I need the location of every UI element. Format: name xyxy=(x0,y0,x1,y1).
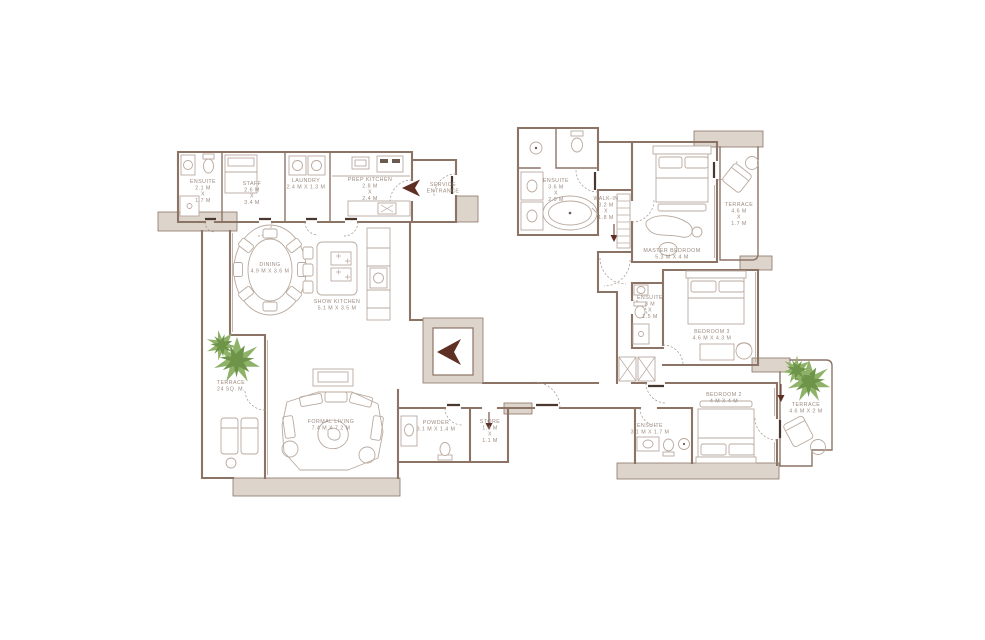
terrace-armchair xyxy=(783,415,814,447)
dryer xyxy=(308,156,325,175)
vanity-unit xyxy=(521,172,543,200)
label-bedroom2-ensuite-name: ENSUITE xyxy=(637,423,663,429)
label-bedroom3-name: BEDROOM 3 xyxy=(694,329,730,335)
sofa-cushion xyxy=(325,392,347,402)
b2-shower-dot xyxy=(683,443,685,445)
terrace-top-right-group xyxy=(722,157,759,194)
walls-corridor xyxy=(483,252,692,408)
slab-bottom-left xyxy=(233,478,400,496)
slab-top-right xyxy=(694,131,763,147)
toilet xyxy=(572,138,583,152)
bathtub-drain xyxy=(569,212,572,215)
svg-text:2.0 M: 2.0 M xyxy=(548,197,564,203)
slab-bottom-right xyxy=(617,463,779,479)
sofa-cushion xyxy=(299,393,322,407)
desk xyxy=(700,344,734,360)
svg-text:2.4 M: 2.4 M xyxy=(362,196,378,202)
cooktop-burner xyxy=(380,159,388,163)
kitchen-tall-cabinets xyxy=(367,228,390,320)
label-laundry-name: LAUNDRY xyxy=(292,178,320,184)
toilet-tank xyxy=(203,154,214,159)
slab-vestibule xyxy=(456,196,478,222)
elevator xyxy=(423,318,483,383)
powder-toilet xyxy=(440,443,450,456)
master-headboard xyxy=(653,146,711,154)
washer xyxy=(289,156,306,175)
master-bedroom-group xyxy=(646,146,711,256)
svg-text:5.1 M X 3.5 M: 5.1 M X 3.5 M xyxy=(318,305,357,311)
bedroom3-headboard xyxy=(686,271,746,278)
label-terrace-right-name: TERRACE xyxy=(792,402,820,408)
label-terrace-left-name: TERRACE xyxy=(217,380,245,386)
shower-head-dot xyxy=(535,147,537,149)
chaise-sofa xyxy=(646,216,692,238)
terrace-side-table xyxy=(746,157,759,170)
label-prep-kitchen-name: PREP KITCHEN xyxy=(348,177,392,183)
island-stool xyxy=(303,264,313,276)
label-bedroom2-name: BEDROOM 2 xyxy=(706,392,742,398)
floor-plan-page: ENSUITE 2.1 M X 1.7 M STAFF 2.6 M X 3.4 … xyxy=(0,0,985,640)
svg-text:1.5 M: 1.5 M xyxy=(642,314,658,320)
svg-text:X: X xyxy=(648,308,652,314)
svg-text:X: X xyxy=(737,215,741,221)
svg-text:2.1 M: 2.1 M xyxy=(195,185,211,191)
svg-text:3.1 M X 1.7 M: 3.1 M X 1.7 M xyxy=(631,429,670,435)
label-walk-in-name: WALK-IN xyxy=(593,196,618,202)
label-staff-ensuite-name: ENSUITE xyxy=(190,179,216,185)
label-master-bedroom-name: MASTER BEDROOM xyxy=(643,248,700,254)
svg-text:X: X xyxy=(488,432,492,438)
island-stool xyxy=(303,281,313,293)
desk-chair xyxy=(736,343,752,359)
hall-closets xyxy=(619,357,655,381)
bed-bench xyxy=(658,204,706,211)
label-powder-name: POWDER xyxy=(423,420,450,426)
svg-text:2.8 M: 2.8 M xyxy=(362,183,378,189)
round-table xyxy=(692,227,702,237)
sofa-cushion xyxy=(283,415,296,438)
terrace-left-group xyxy=(201,323,260,468)
svg-text:1.4 M: 1.4 M xyxy=(482,425,498,431)
svg-text:3.6 M: 3.6 M xyxy=(548,184,564,190)
label-bedroom3-ensuite-name: ENSUITE xyxy=(637,295,663,301)
sun-lounger xyxy=(221,418,238,454)
svg-text:4.6 M: 4.6 M xyxy=(731,208,747,214)
svg-text:4 M X 4 M: 4 M X 4 M xyxy=(710,398,738,404)
svg-text:X: X xyxy=(604,209,608,215)
svg-text:1.7 M: 1.7 M xyxy=(731,221,747,227)
bedroom2-headboard xyxy=(696,457,756,463)
svg-text:24 SQ. M.: 24 SQ. M. xyxy=(217,386,245,392)
sun-lounger xyxy=(241,418,258,454)
label-formal-living-name: FORMAL LIVING xyxy=(308,419,355,425)
b3-shower xyxy=(633,324,649,344)
service-arrow-icon xyxy=(402,180,420,197)
prep-sink xyxy=(352,157,369,169)
terrace-side-table xyxy=(811,440,826,455)
svg-text:3.1 M X 1.4 M: 3.1 M X 1.4 M xyxy=(417,426,456,432)
label-store-name: STORE xyxy=(480,419,500,425)
svg-text:4.9 M X 3.6 M: 4.9 M X 3.6 M xyxy=(251,268,290,274)
island-stool xyxy=(303,247,313,259)
side-table xyxy=(359,447,375,463)
tv-console xyxy=(313,369,353,386)
svg-text:3.4 M: 3.4 M xyxy=(244,200,260,206)
svg-text:4.6 M X 2 M: 4.6 M X 2 M xyxy=(789,408,823,414)
b2-toilet xyxy=(664,439,674,451)
b2-toilet-tank xyxy=(663,452,674,456)
walkin-wardrobe xyxy=(617,194,630,248)
svg-text:1.7 M: 1.7 M xyxy=(195,198,211,204)
label-master-ensuite-name: ENSUITE xyxy=(543,178,569,184)
svg-text:X: X xyxy=(250,194,254,200)
svg-text:ENTRANCE: ENTRANCE xyxy=(427,188,460,194)
svg-text:2.4 M X 1.3 M: 2.4 M X 1.3 M xyxy=(287,184,326,190)
svg-text:5.3 M X 4 M: 5.3 M X 4 M xyxy=(655,254,689,260)
svg-text:2.6 M: 2.6 M xyxy=(244,187,260,193)
svg-text:X: X xyxy=(554,191,558,197)
svg-text:1.8 M: 1.8 M xyxy=(598,215,614,221)
svg-text:X: X xyxy=(201,192,205,198)
svg-text:4.6 M X 4.3 M: 4.6 M X 4.3 M xyxy=(693,335,732,341)
label-terrace-top-right-name: TERRACE xyxy=(725,202,753,208)
vanity-unit xyxy=(521,202,543,230)
cooktop-burner xyxy=(392,159,400,163)
terrace-side-table xyxy=(226,458,236,468)
terrace-armchair xyxy=(722,163,753,194)
floor-plan-drawing: ENSUITE 2.1 M X 1.7 M STAFF 2.6 M X 3.4 … xyxy=(0,0,985,640)
prep-cooktop xyxy=(377,156,403,172)
label-service-entrance: SERVICE xyxy=(430,182,456,188)
svg-text:3 M: 3 M xyxy=(645,301,655,307)
toilet-tank xyxy=(571,131,583,136)
svg-text:X: X xyxy=(368,190,372,196)
powder-vanity xyxy=(401,416,417,446)
label-show-kitchen-name: SHOW KITCHEN xyxy=(314,299,361,305)
label-staff-name: STAFF xyxy=(243,181,262,187)
b2-vanity xyxy=(637,437,659,451)
svg-text:3.2 M: 3.2 M xyxy=(598,202,614,208)
toilet xyxy=(204,159,214,173)
svg-text:1.1 M: 1.1 M xyxy=(482,438,498,444)
svg-text:7.4 M X 7.2 M: 7.4 M X 7.2 M xyxy=(312,425,351,431)
side-table xyxy=(282,441,298,457)
label-dining-name: DINING xyxy=(259,262,280,268)
